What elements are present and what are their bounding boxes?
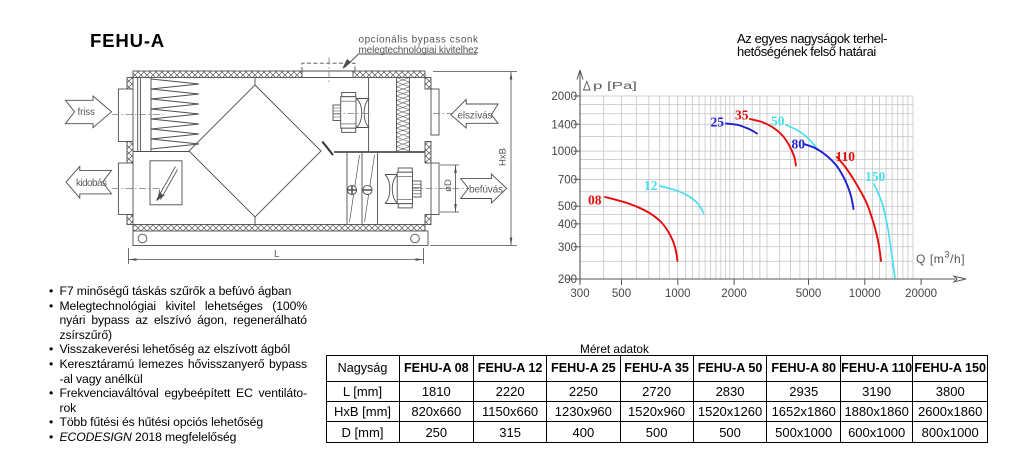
svg-text:Q [m3/h]: Q [m3/h] [916, 250, 965, 267]
svg-text:35: 35 [735, 108, 749, 123]
svg-text:HxB: HxB [498, 148, 509, 166]
svg-text:1000: 1000 [551, 146, 577, 158]
svg-text:L: L [274, 249, 280, 260]
svg-text:300: 300 [570, 288, 589, 300]
svg-text:12: 12 [644, 178, 658, 193]
svg-text:øD: øD [443, 179, 454, 192]
svg-text:500: 500 [558, 201, 577, 213]
svg-text:200: 200 [558, 274, 577, 286]
svg-text:20000: 20000 [905, 288, 937, 300]
svg-text:2000: 2000 [721, 288, 747, 300]
svg-text:700: 700 [558, 174, 577, 186]
svg-text:2000: 2000 [551, 91, 577, 103]
svg-text:p [Pa]: p [Pa] [593, 81, 637, 92]
svg-text:1400: 1400 [551, 119, 577, 131]
svg-text:1000: 1000 [665, 288, 691, 300]
svg-text:50: 50 [771, 114, 785, 129]
svg-text:110: 110 [836, 149, 856, 164]
svg-text:08: 08 [588, 193, 602, 208]
svg-text:400: 400 [558, 219, 577, 231]
svg-text:300: 300 [558, 242, 577, 254]
svg-text:melegtechnológiai kivitelhez: melegtechnológiai kivitelhez [359, 45, 479, 56]
svg-text:500: 500 [612, 288, 631, 300]
svg-text:opcionális bypass csonk: opcionális bypass csonk [359, 35, 480, 46]
svg-text:kidobás: kidobás [76, 178, 107, 189]
svg-text:25: 25 [711, 115, 725, 130]
svg-text:150: 150 [865, 169, 886, 184]
svg-text:elszívás: elszívás [458, 111, 493, 122]
svg-text:10000: 10000 [849, 288, 881, 300]
svg-text:friss: friss [78, 107, 96, 118]
svg-text:80: 80 [792, 137, 806, 152]
svg-text:befúvás: befúvás [469, 185, 503, 196]
svg-text:5000: 5000 [796, 288, 822, 300]
